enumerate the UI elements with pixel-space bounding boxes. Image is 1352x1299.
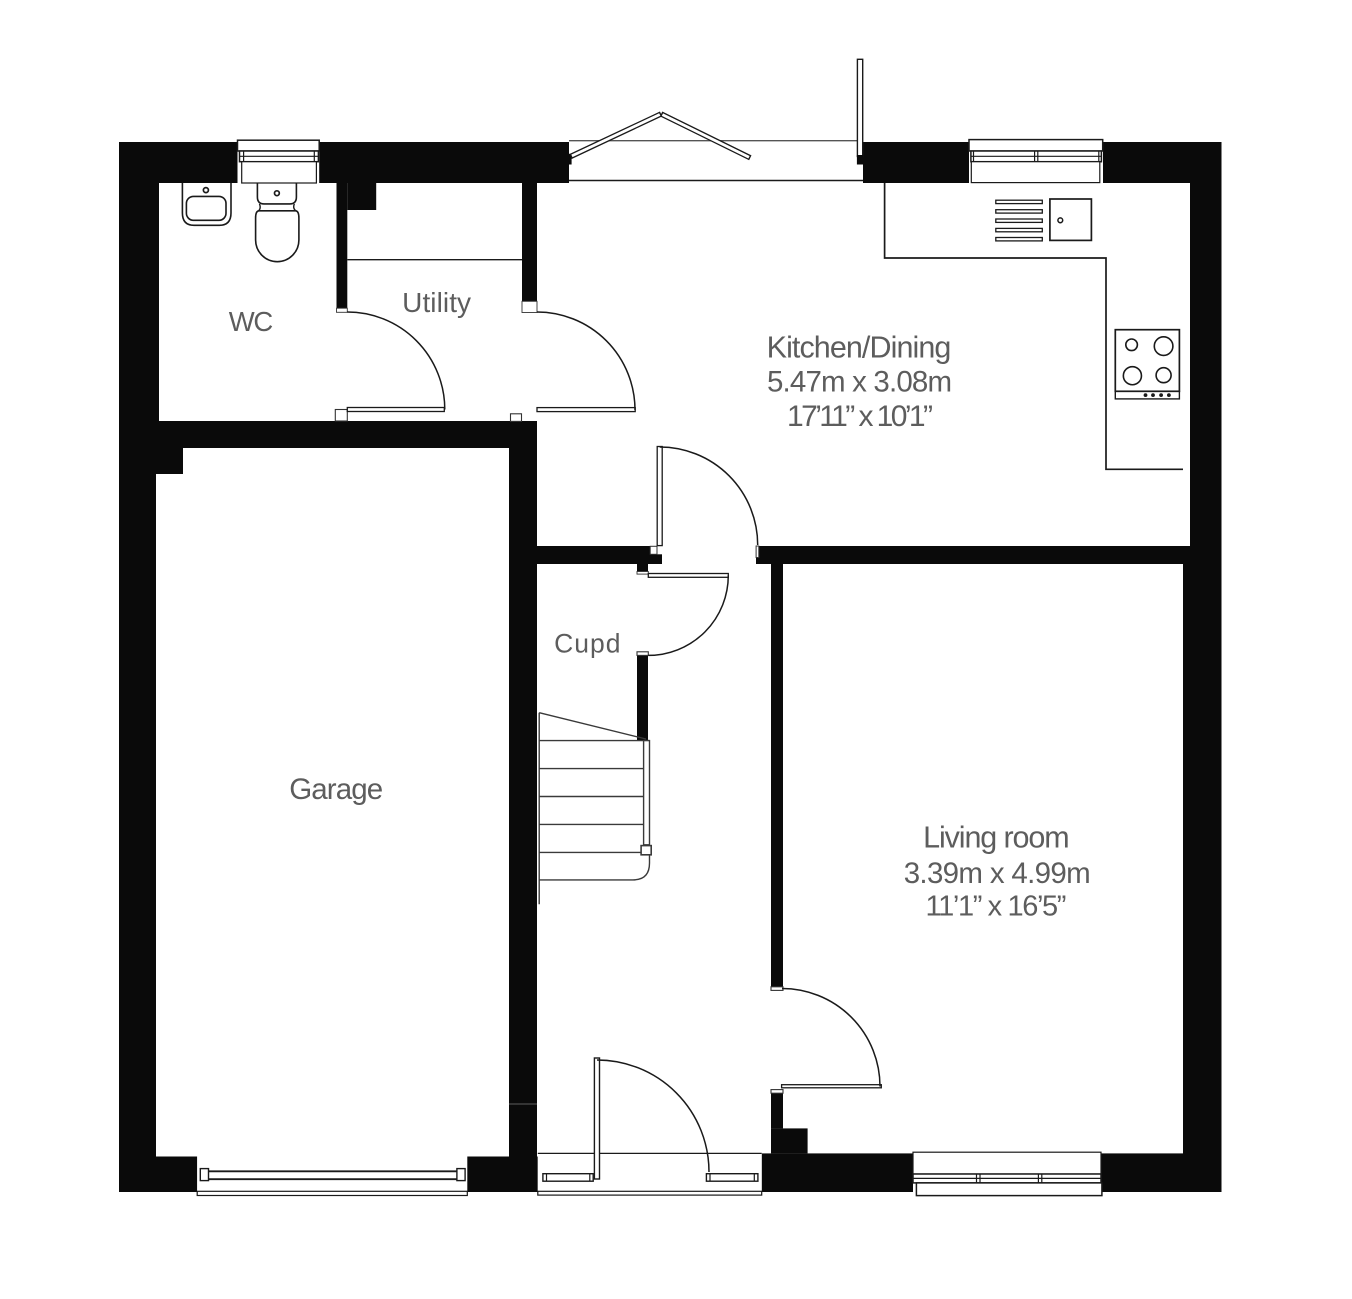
svg-text:WC: WC xyxy=(229,306,273,337)
svg-text:17’11” x 10’1”: 17’11” x 10’1” xyxy=(787,400,933,433)
svg-text:11’1” x 16’5”: 11’1” x 16’5” xyxy=(926,890,1067,922)
svg-text:5.47m x 3.08m: 5.47m x 3.08m xyxy=(767,366,952,399)
svg-text:Garage: Garage xyxy=(289,773,383,806)
svg-text:3.39m x 4.99m: 3.39m x 4.99m xyxy=(904,857,1091,890)
svg-text:Living room: Living room xyxy=(923,821,1070,855)
svg-text:Cupd: Cupd xyxy=(554,628,620,658)
svg-text:Utility: Utility xyxy=(402,287,471,318)
svg-text:Kitchen/Dining: Kitchen/Dining xyxy=(767,330,952,364)
